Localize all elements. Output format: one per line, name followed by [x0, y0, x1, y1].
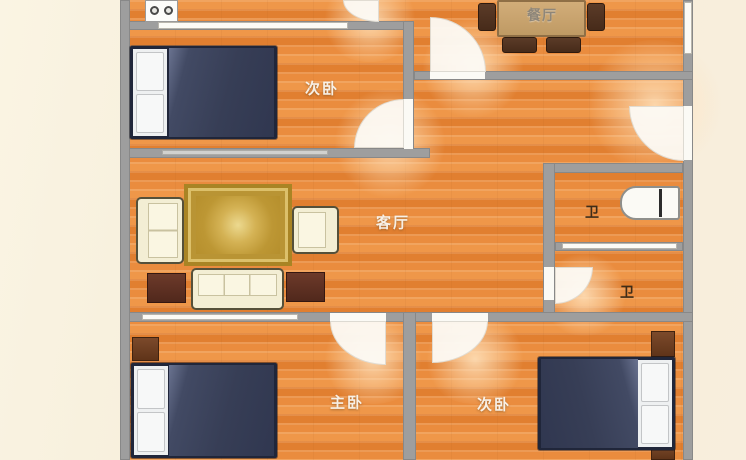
pillow — [136, 52, 164, 91]
room-label-bathroom-upper: 卫 — [585, 202, 599, 222]
door-opening — [330, 313, 386, 321]
door-opening — [404, 99, 413, 149]
dining-chair — [587, 3, 605, 31]
sofa-cushions — [198, 274, 277, 296]
room-label-master-bedroom: 主卧 — [330, 392, 364, 413]
room-label-bedroom-bottom-right: 次卧 — [477, 394, 511, 415]
nightstand — [651, 331, 675, 357]
bed-bottom-right-bedroom — [538, 357, 675, 450]
bathtub-divider — [659, 189, 662, 217]
pillow — [137, 369, 165, 409]
sofa-cushions — [298, 212, 326, 248]
nightstand — [132, 337, 159, 361]
door-opening — [430, 72, 485, 79]
room-label-living: 客厅 — [376, 212, 410, 233]
bed-top-bedroom — [130, 46, 277, 139]
window — [562, 243, 677, 249]
dining-chair — [478, 3, 496, 31]
pillow — [137, 412, 165, 452]
wall-outer-left — [120, 0, 130, 460]
pillow — [641, 405, 669, 444]
bed-pillows — [134, 366, 168, 455]
floor-plan: 次卧 餐厅 客厅 卫 卫 主卧 次卧 — [0, 0, 746, 460]
window — [684, 2, 692, 54]
stove-burner-icon — [150, 6, 159, 15]
stove-burner-icon — [164, 6, 173, 15]
door-opening — [432, 313, 488, 321]
room-label-bedroom-top: 次卧 — [305, 78, 339, 99]
door-opening — [544, 267, 554, 300]
bed-duvet — [169, 48, 274, 137]
side-table — [147, 273, 186, 303]
bed-pillows — [638, 360, 672, 447]
armchair — [292, 206, 339, 254]
bed-master-bedroom — [131, 363, 277, 458]
door-opening — [684, 106, 692, 160]
sofa-cushions — [148, 203, 178, 258]
wall-bedrooms-divider — [403, 312, 416, 460]
window — [158, 22, 348, 29]
dining-chair — [546, 37, 581, 53]
wall-bathroom-top — [543, 163, 683, 173]
bed-duvet — [169, 365, 274, 456]
dining-chair — [502, 37, 537, 53]
three-seat-sofa — [191, 268, 284, 310]
side-table — [286, 272, 325, 302]
pillow — [641, 363, 669, 402]
pillow — [136, 94, 164, 133]
bathtub — [620, 186, 680, 220]
stove — [145, 0, 178, 22]
room-label-dining: 餐厅 — [527, 5, 557, 25]
window — [142, 314, 298, 320]
bed-duvet — [541, 359, 638, 448]
room-label-bathroom-lower: 卫 — [620, 282, 634, 302]
loveseat-sofa — [136, 197, 184, 264]
wall-outer-right — [683, 0, 693, 460]
bed-pillows — [133, 49, 167, 136]
window — [162, 150, 328, 155]
area-rug — [184, 184, 292, 266]
